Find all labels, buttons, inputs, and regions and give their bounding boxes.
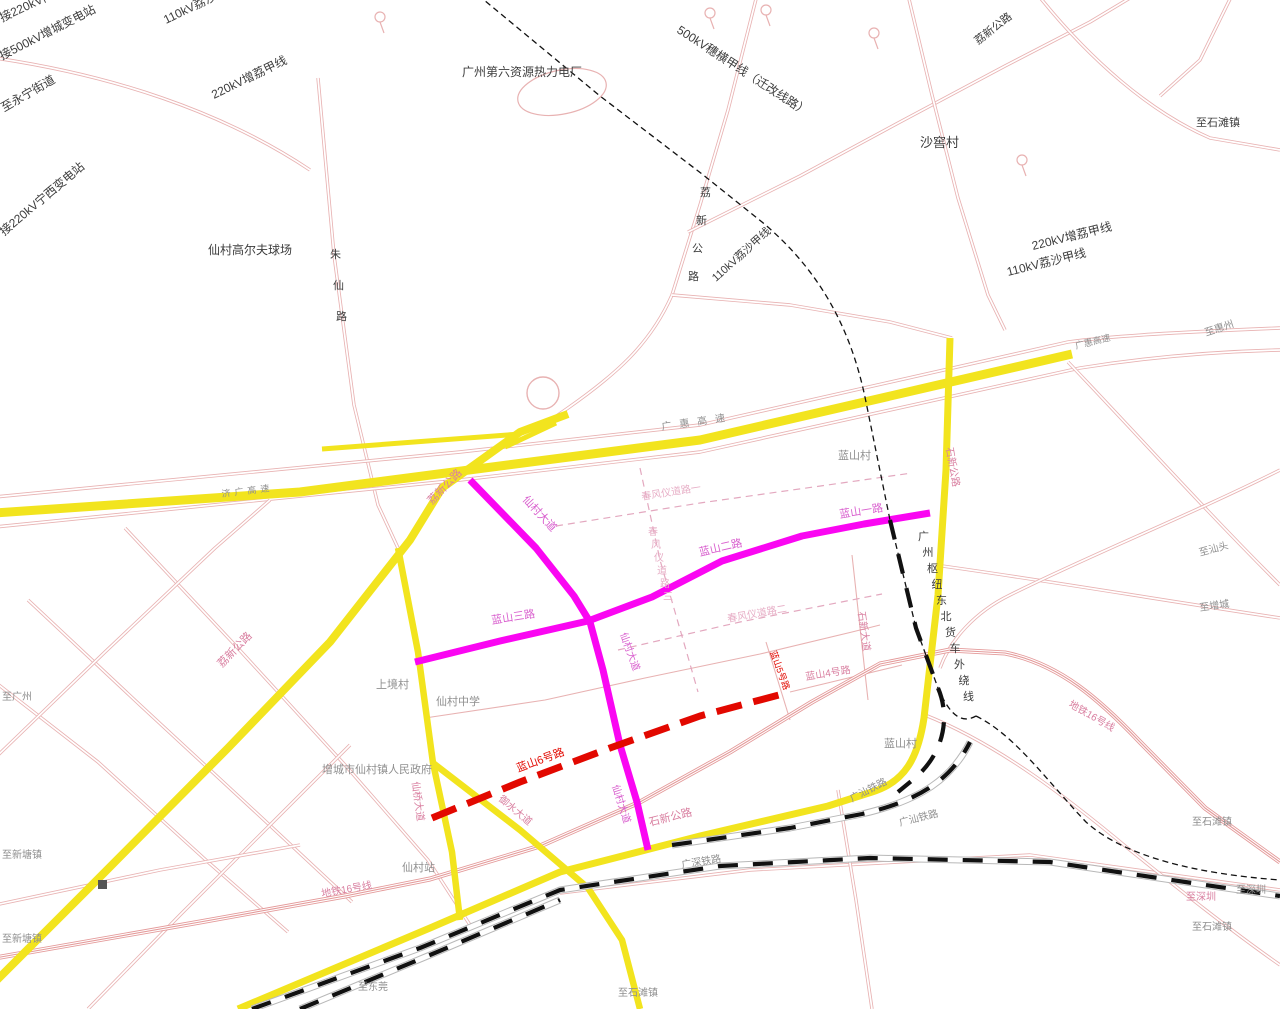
map-label: 至石滩镇 (618, 986, 658, 999)
map-label: 仙村高尔夫球场 (208, 242, 292, 257)
map-label: 至东莞 (358, 980, 388, 993)
pylon-symbol (705, 8, 715, 18)
road-east-west-y300 (672, 295, 952, 338)
map-label: 至永宁街道 (0, 72, 57, 115)
map-label: 广惠高速 (661, 410, 734, 433)
map-label: 石新大道 (855, 611, 873, 652)
map-label: 春风仪道路二 (726, 602, 787, 625)
pylon-symbol (761, 5, 771, 15)
expressway-ramp-1 (322, 434, 520, 449)
road-lanshan-1-2-3 (415, 513, 930, 662)
road-shajiao-village (908, 0, 1005, 330)
map-label: 朱仙路 (330, 248, 347, 323)
map-label: 至广州 (2, 691, 32, 703)
road-sw-bottom (0, 845, 300, 905)
map-label: 蓝山三路 (490, 607, 535, 627)
map-label: 110kV荔沙甲线 (1005, 246, 1087, 279)
map-label: 荔新公路 (971, 9, 1014, 47)
map-label: 接220kV宁西变电站 (0, 159, 87, 239)
map-label: 至石滩镇 (1192, 815, 1232, 828)
map-label: 蓝山一路 (838, 501, 883, 521)
pylon-symbol (1017, 155, 1027, 165)
planned-road-2 (618, 594, 882, 650)
interchange-roundabout (527, 377, 559, 409)
map-label: 220kV增荔甲线 (209, 53, 289, 102)
map-label: 地铁16号线 (1067, 697, 1118, 734)
map-label: 至深圳 (1236, 884, 1266, 896)
map-label: 广惠高速 (1074, 332, 1112, 351)
road-right-sweep-2 (940, 470, 1280, 668)
map-label: 至石滩镇 (1196, 115, 1240, 129)
map-label: 上境村 (376, 677, 409, 691)
map-label: 广汕铁路 (898, 807, 940, 829)
building-symbol (98, 880, 107, 889)
pylon-symbol (869, 28, 879, 38)
map-label: 仙村中学 (436, 694, 480, 708)
map-label: 沙窖村 (920, 135, 959, 150)
map-label: 至汕头 (1198, 540, 1230, 559)
map-canvas: 接220kV门接500kV增城变电站至永宁街道接220kV宁西变电站110kV荔… (0, 0, 1280, 1009)
highway-edge-north (0, 328, 1280, 497)
pylon-symbol (375, 12, 385, 22)
map-label: 至石滩镇 (1192, 920, 1232, 933)
map-label: 仙桥大道 (409, 781, 427, 822)
map-label: 至新塘镇 (2, 932, 42, 945)
map-label: 110kV荔沙甲线 (161, 0, 240, 27)
map-label: 蓝山5号路 (768, 649, 792, 691)
road-top-right-fork (1160, 0, 1232, 96)
map-label: 蓝山4号路 (804, 663, 851, 683)
map-label: 仙村大道 (617, 631, 643, 673)
map-label: 接220kV门 (0, 0, 56, 25)
map-label: 春风仪道路一 (640, 481, 701, 503)
map-label: 500kV穗横甲线（迁改线路） (674, 22, 811, 118)
map-label: 至深圳 (1186, 891, 1216, 903)
map-label: 蓝山村 (884, 736, 917, 750)
map-label: 仙村站 (402, 860, 435, 874)
map-label: 石新公路 (647, 805, 693, 829)
map-label: 增城市仙村镇人民政府 (322, 762, 432, 776)
map-label: 仙村大道 (520, 492, 560, 534)
railway-guangshen-main (252, 858, 1280, 1009)
planning-map: 接220kV门接500kV增城变电站至永宁街道接220kV宁西变电站110kV荔… (0, 0, 1280, 1009)
map-label: 至惠州 (1203, 317, 1236, 339)
map-label: 广州第六资源热力电厂 (462, 65, 582, 79)
road-to-shitan-top-right (1038, 0, 1280, 150)
map-label: 至增城 (1199, 597, 1231, 614)
map-label: 110kV荔沙甲线 (709, 224, 774, 284)
map-label: 至新塘镇 (2, 848, 42, 861)
map-label: 荔新公路 (214, 629, 255, 670)
map-label: 蓝山村 (838, 448, 871, 462)
